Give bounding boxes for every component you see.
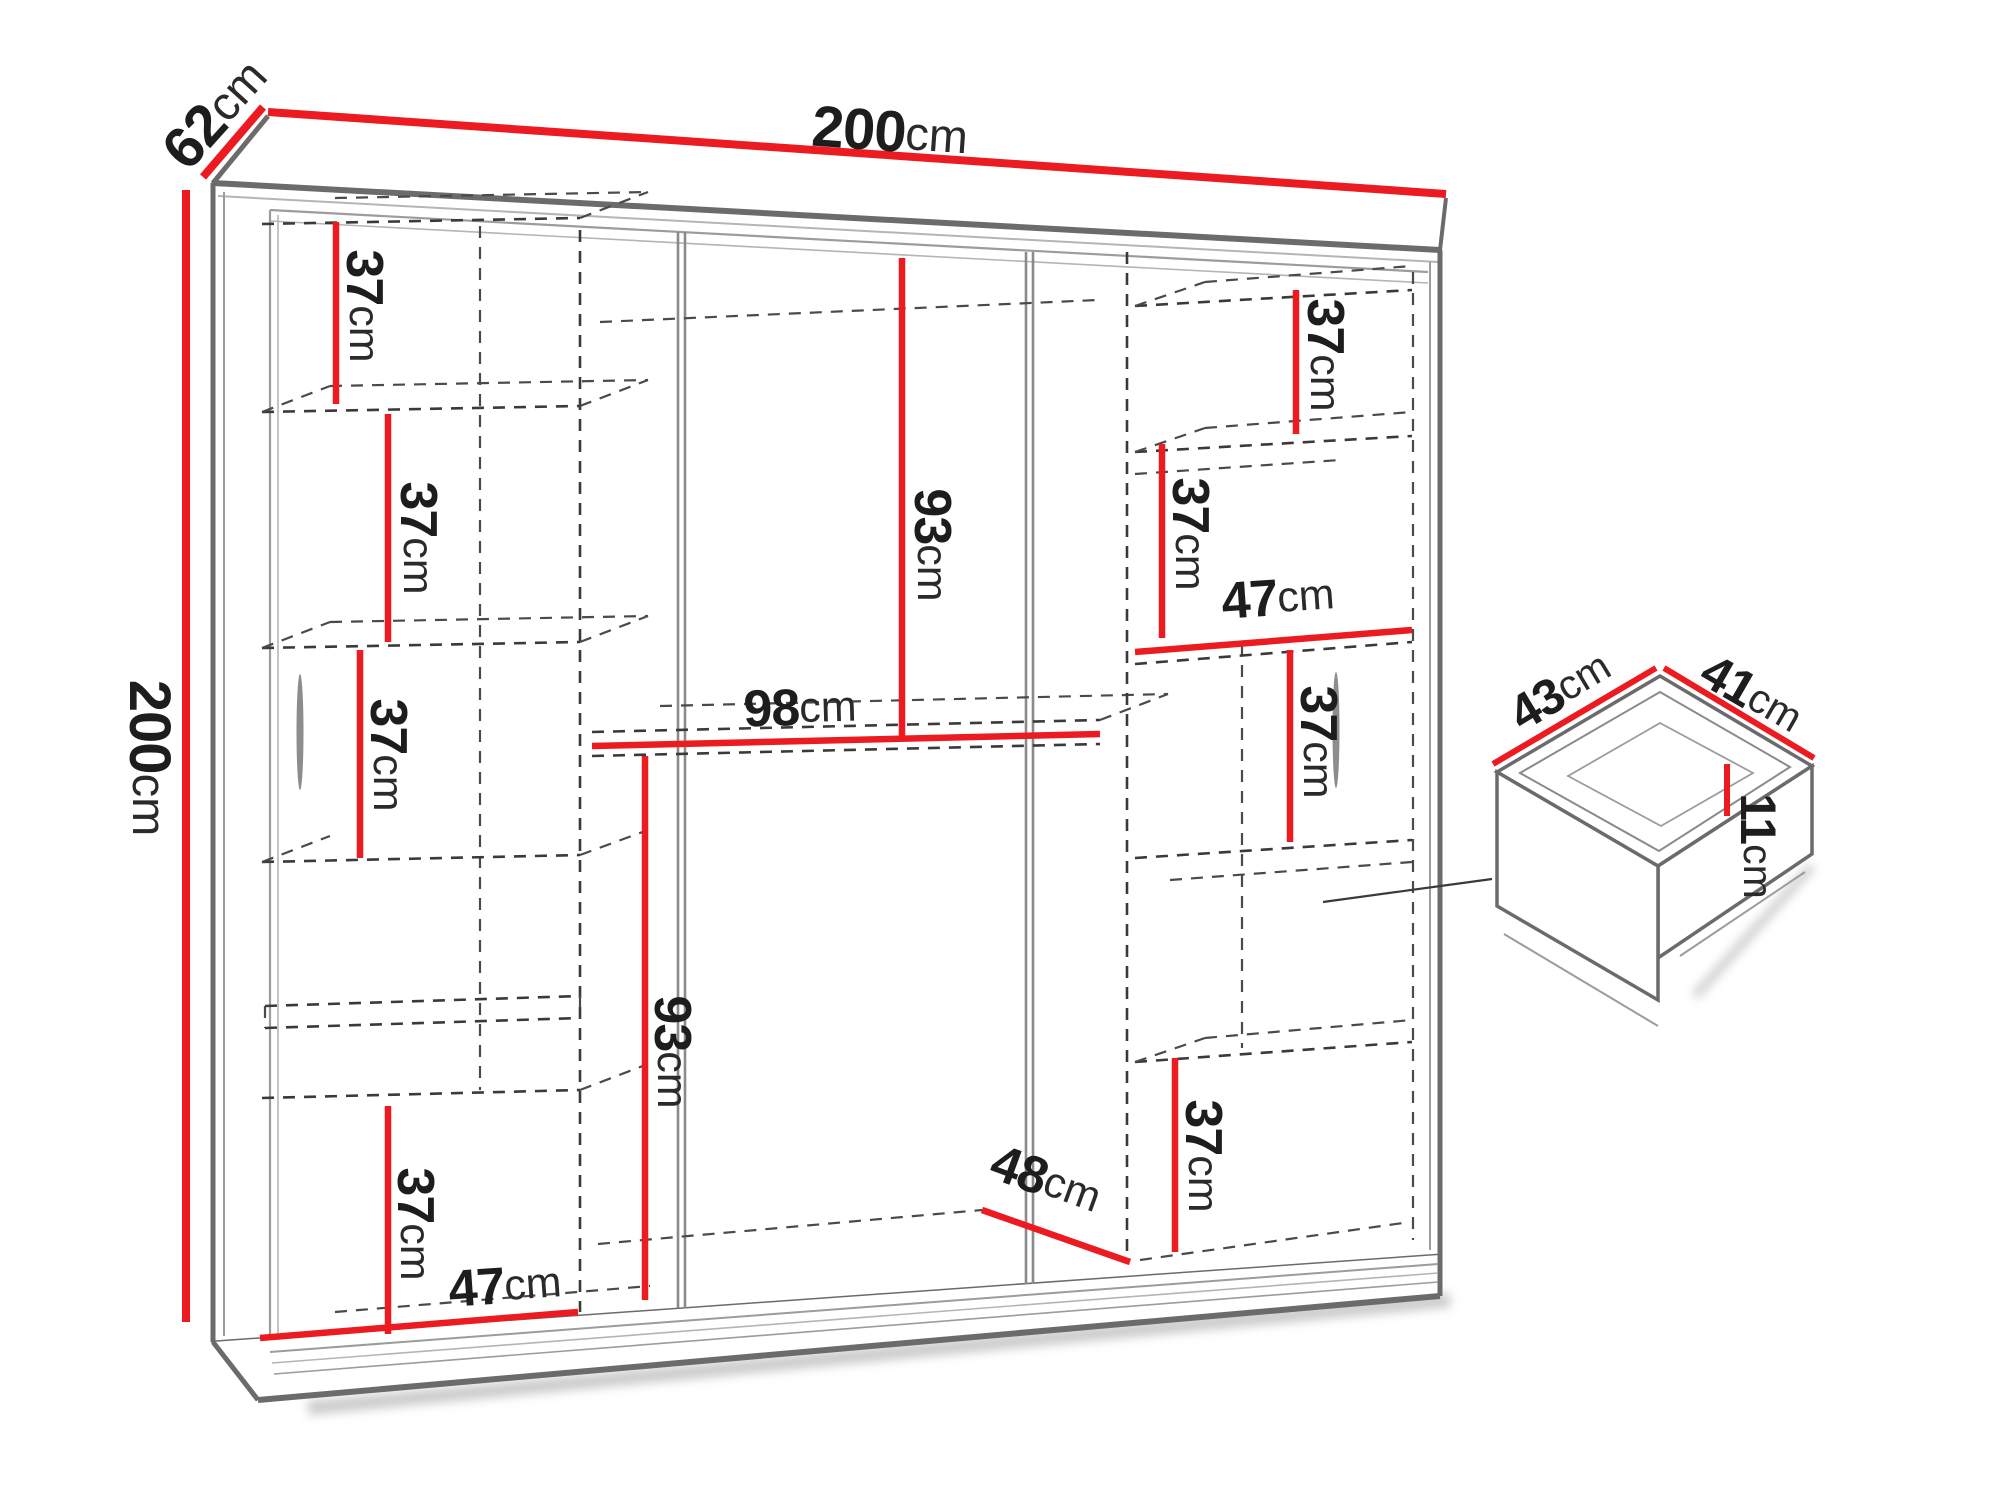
dim-label-right-shelf-2: 37cm xyxy=(1161,477,1219,590)
dim-label-mid-width: 98cm xyxy=(743,678,858,739)
dim-label-right-shelf-1: 37cm xyxy=(1296,298,1354,411)
diagram-canvas: 200cm 62cm 200cm 37cm 37cm 37cm 37cm 47c… xyxy=(0,0,2000,1500)
dim-label-top-width: 200cm xyxy=(810,93,971,169)
dim-label-left-shelf-2: 37cm xyxy=(389,481,447,594)
dim-label-left-shelf-1: 37cm xyxy=(335,249,393,362)
dim-label-right-shelf-4: 37cm xyxy=(1174,1099,1232,1212)
dim-label-left-height: 200cm xyxy=(118,680,183,836)
dim-label-left-shelf-4: 37cm xyxy=(386,1167,444,1280)
left-door-handle xyxy=(297,674,304,790)
dim-label-drawer-height: 11cm xyxy=(1730,793,1786,899)
dim-label-left-shelf-3: 37cm xyxy=(359,698,417,811)
dim-label-mid-lower-height: 93cm xyxy=(643,995,701,1108)
dim-label-mid-upper-height: 93cm xyxy=(903,488,961,601)
dim-label-right-shelf-3: 37cm xyxy=(1289,685,1347,798)
drawer-detail: 43cm 41cm 11cm xyxy=(1493,638,1814,1026)
wardrobe-diagram-svg: 200cm 62cm 200cm 37cm 37cm 37cm 37cm 47c… xyxy=(0,0,2000,1500)
